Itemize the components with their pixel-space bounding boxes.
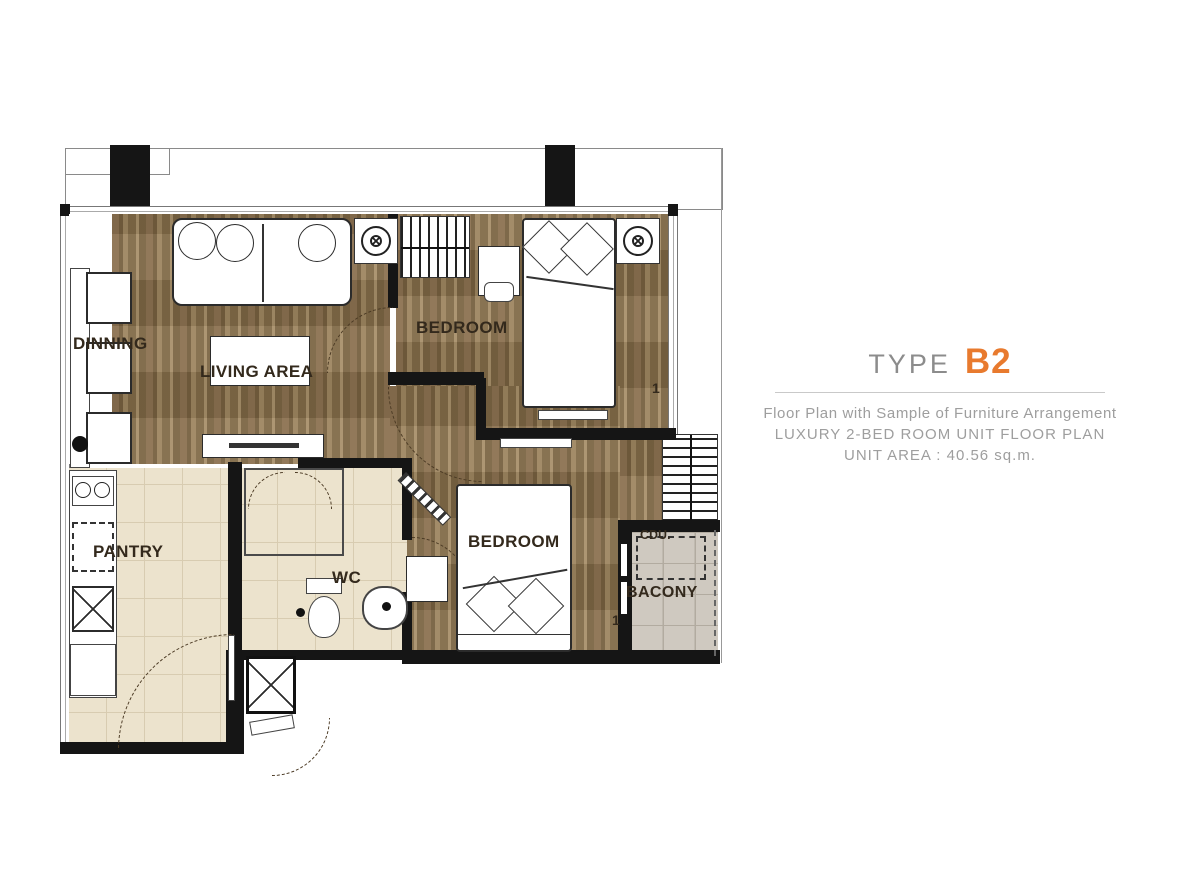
toilet-bowl-icon xyxy=(308,596,340,638)
description-line-3: UNIT AREA : 40.56 sq.m. xyxy=(740,445,1140,466)
room-label-cdu: CDU. xyxy=(640,528,671,542)
floor-plan: DINNING LIVING AREA BEDROOM BEDROOM PANT… xyxy=(60,140,728,772)
shower-box xyxy=(244,468,344,556)
sliding-door-slot xyxy=(621,544,627,576)
dining-chair-icon xyxy=(86,412,132,464)
ceiling-unit-core xyxy=(370,235,382,247)
info-panel: TYPE B2 Floor Plan with Sample of Furnit… xyxy=(740,342,1140,466)
room-label-living: LIVING AREA xyxy=(200,362,313,382)
nightstand-icon xyxy=(406,556,448,602)
bedroom2-floor-east xyxy=(620,434,662,522)
bed2-icon xyxy=(456,484,572,652)
toilet-flush-dot xyxy=(296,608,305,617)
wall-pantry-wc xyxy=(228,462,242,652)
pillow-icon xyxy=(508,578,565,635)
basin-faucet-dot xyxy=(382,602,391,611)
stove-icon xyxy=(72,476,114,506)
room-label-wc: WC xyxy=(332,568,361,588)
sink-icon xyxy=(72,586,114,632)
floor-drain-icon xyxy=(72,436,88,452)
shelf-icon xyxy=(500,438,572,448)
footboard-line xyxy=(458,634,570,635)
ceiling-unit-icon xyxy=(616,218,660,264)
washer-icon xyxy=(70,644,116,696)
desk-chair-icon xyxy=(484,282,514,302)
window-mark: 1 xyxy=(612,612,620,628)
room-label-pantry: PANTRY xyxy=(93,542,163,562)
type-code: B2 xyxy=(965,342,1012,382)
sofa-divider xyxy=(262,224,264,302)
wall-l-horizontal xyxy=(388,372,484,385)
room-label-bedroom1: BEDROOM xyxy=(416,318,508,338)
tv-icon xyxy=(229,443,299,448)
cdu-box xyxy=(636,536,706,580)
room-label-balcony: BACONY xyxy=(626,584,698,602)
wall-wc-east-upper xyxy=(402,458,412,540)
column-wall xyxy=(545,145,575,209)
window-mark: 1 xyxy=(652,380,660,396)
balcony-rail-dashed xyxy=(708,530,716,656)
description-line-1: Floor Plan with Sample of Furniture Arra… xyxy=(740,403,1140,424)
plan-title: TYPE B2 xyxy=(740,342,1140,382)
type-label: TYPE xyxy=(868,349,951,380)
window-bedroom1 xyxy=(668,210,678,440)
description-line-2: LUXURY 2-BED ROOM UNIT FLOOR PLAN xyxy=(740,424,1140,445)
wall-wc-top xyxy=(298,458,410,468)
dining-chair-icon xyxy=(86,272,132,324)
room-label-dining: DINNING xyxy=(73,334,148,354)
wardrobe2-icon xyxy=(662,434,718,522)
blanket-fold-line xyxy=(526,276,613,290)
pantry-door-leaf xyxy=(228,635,235,701)
wardrobe1-icon xyxy=(400,216,470,278)
burner-icon xyxy=(94,482,110,498)
outer-boundary-line xyxy=(721,148,722,663)
pillow-icon xyxy=(560,222,614,276)
blanket-fold-line xyxy=(463,569,568,589)
room-label-bedroom2: BEDROOM xyxy=(468,532,560,552)
burner-icon xyxy=(75,482,91,498)
wall-unit-bottom xyxy=(402,650,720,664)
tv-console-icon xyxy=(202,434,324,458)
shaft-box xyxy=(246,656,296,714)
corner-wall xyxy=(668,204,678,216)
sofa-cushion-icon xyxy=(298,224,336,262)
bed1-icon xyxy=(522,218,616,408)
shelf-icon xyxy=(538,410,608,420)
ceiling-unit-icon xyxy=(354,218,398,264)
title-divider xyxy=(775,392,1105,393)
ceiling-unit-core xyxy=(632,235,644,247)
sofa-cushion-icon xyxy=(178,222,216,260)
sofa-cushion-icon xyxy=(216,224,254,262)
